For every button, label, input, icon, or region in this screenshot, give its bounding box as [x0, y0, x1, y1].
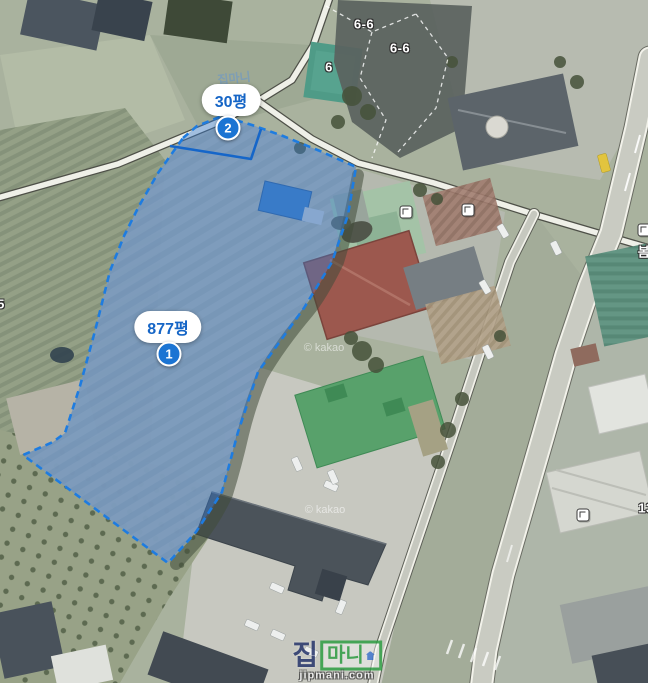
area-label-parcel1[interactable]: 877평	[134, 311, 201, 343]
parcel-number-label: 6-6	[390, 41, 410, 56]
house-icon	[366, 651, 375, 660]
building-site-icon	[577, 509, 590, 522]
parcel2-badge[interactable]: 2	[216, 116, 241, 141]
jipmani-logo-mani: 마니	[327, 646, 364, 666]
jipmani-domain: jipmani.com	[299, 670, 374, 682]
jipmani-watermark: 집 마니 jipmani.com	[292, 641, 382, 682]
jipmani-logo-jip: 집	[292, 642, 318, 670]
kakao-attribution: © kakao	[305, 504, 346, 516]
parcel-number-label: 봄	[638, 242, 648, 261]
area-label-parcel2[interactable]: 30평	[202, 84, 261, 116]
parcel1-badge[interactable]: 1	[157, 342, 182, 367]
kakao-attribution: © kakao	[304, 342, 345, 354]
parcel-number-label: 5	[0, 297, 5, 312]
building-site-icon	[400, 206, 413, 219]
building-site-icon	[462, 204, 475, 217]
parcel-number-label: 6-6	[354, 17, 374, 32]
jipmani-logo-box: 마니	[320, 641, 382, 671]
parcel-number-label: 13	[638, 501, 648, 516]
building-site-icon	[638, 224, 648, 237]
map-viewport[interactable]: 6-6 6-6 6 5 봄 13 © kakao © kakao 집마니 30평…	[0, 0, 648, 683]
parcel-number-label: 6	[325, 60, 333, 75]
